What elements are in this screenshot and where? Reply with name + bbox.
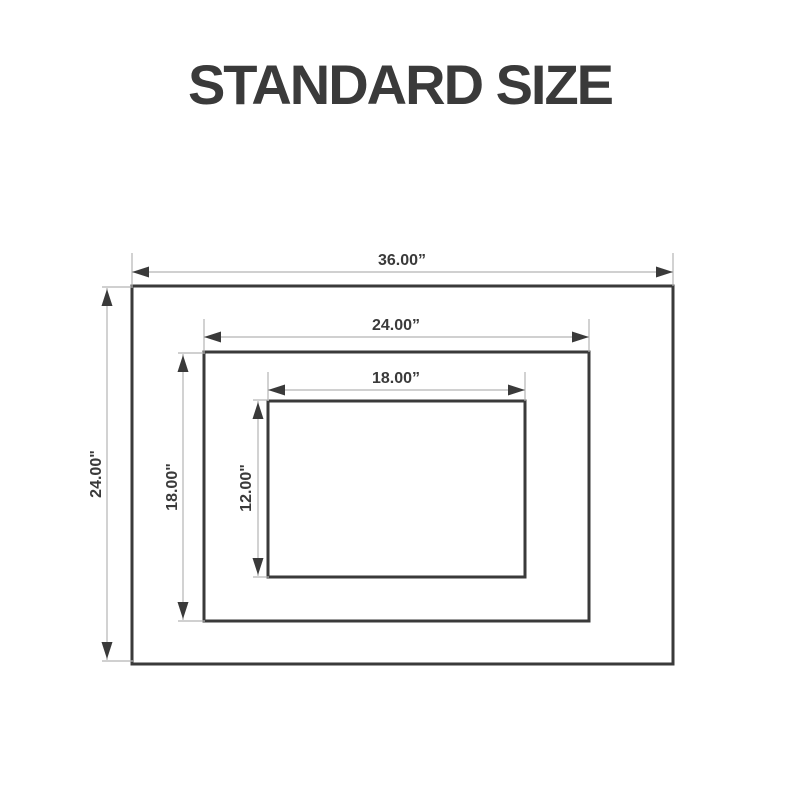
inner-rectangle: [268, 401, 525, 577]
middle-width-label: 24.00”: [372, 317, 420, 334]
middle-height-label: 18.00": [164, 463, 181, 511]
size-rectangles: [132, 286, 673, 664]
outer-height-label: 24.00": [88, 450, 105, 498]
arrow-right-icon: [656, 267, 673, 278]
outer-width-dimension: 36.00”: [132, 252, 673, 286]
outer-height-dimension: 24.00": [88, 287, 133, 661]
inner-height-label: 12.00": [238, 464, 255, 512]
inner-width-label: 18.00”: [372, 370, 420, 387]
arrow-up-icon: [102, 289, 113, 306]
outer-width-label: 36.00”: [378, 252, 426, 269]
arrow-left-icon: [132, 267, 149, 278]
arrow-down-icon: [102, 642, 113, 659]
standard-size-diagram: 36.00” 24.00" 24.00” 18.00" 18.00”: [0, 0, 800, 800]
